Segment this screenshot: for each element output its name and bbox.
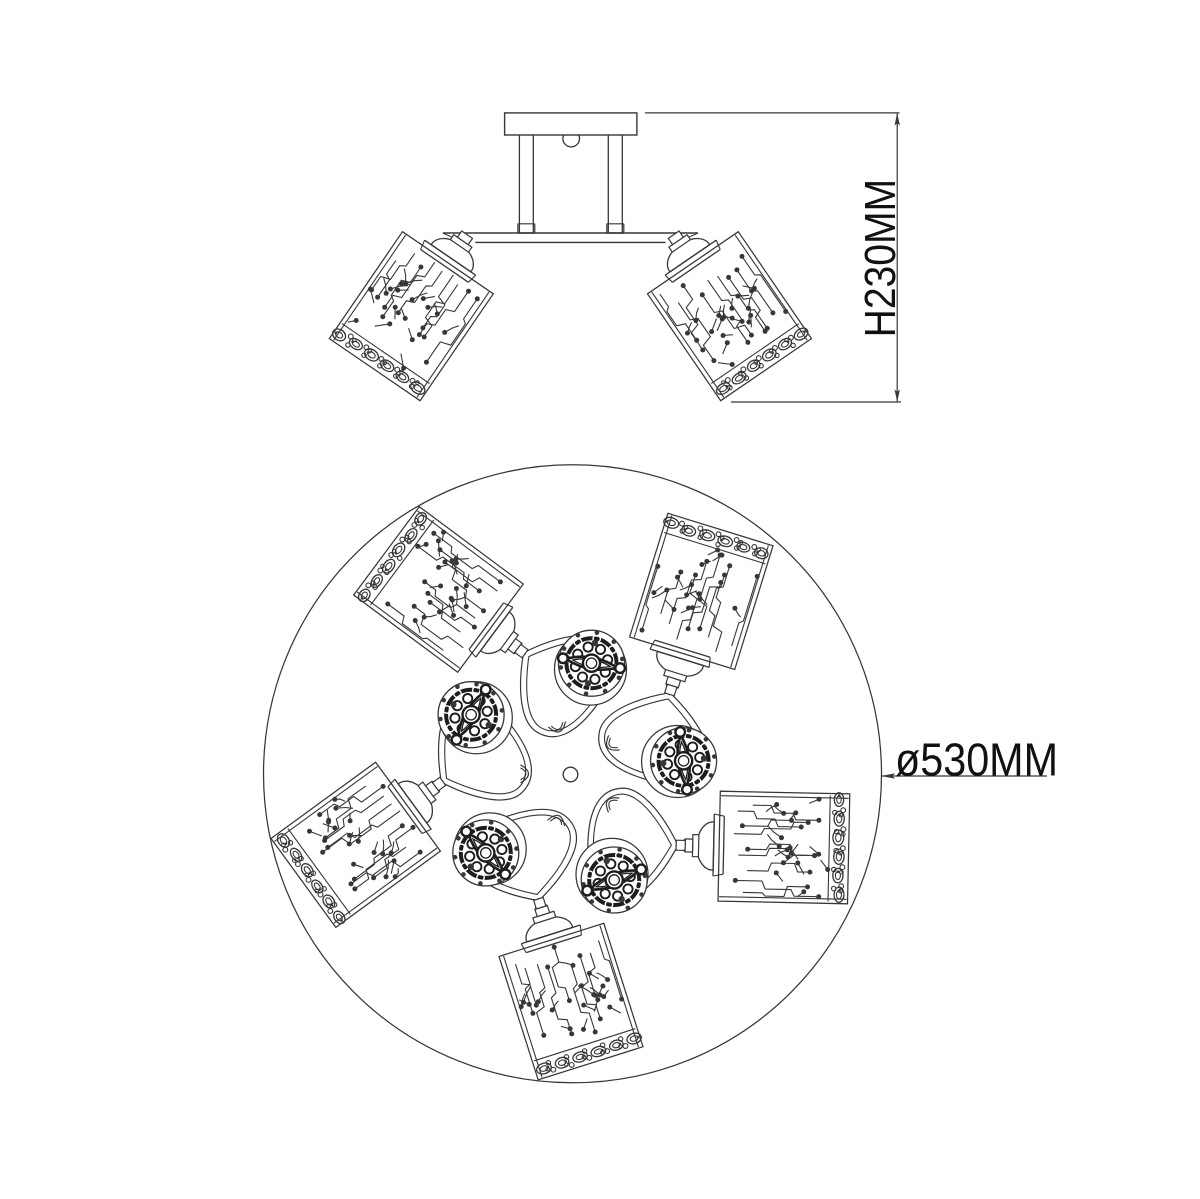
svg-text:H230MM: H230MM bbox=[856, 179, 905, 338]
svg-text:ø530MM: ø530MM bbox=[895, 734, 1058, 786]
